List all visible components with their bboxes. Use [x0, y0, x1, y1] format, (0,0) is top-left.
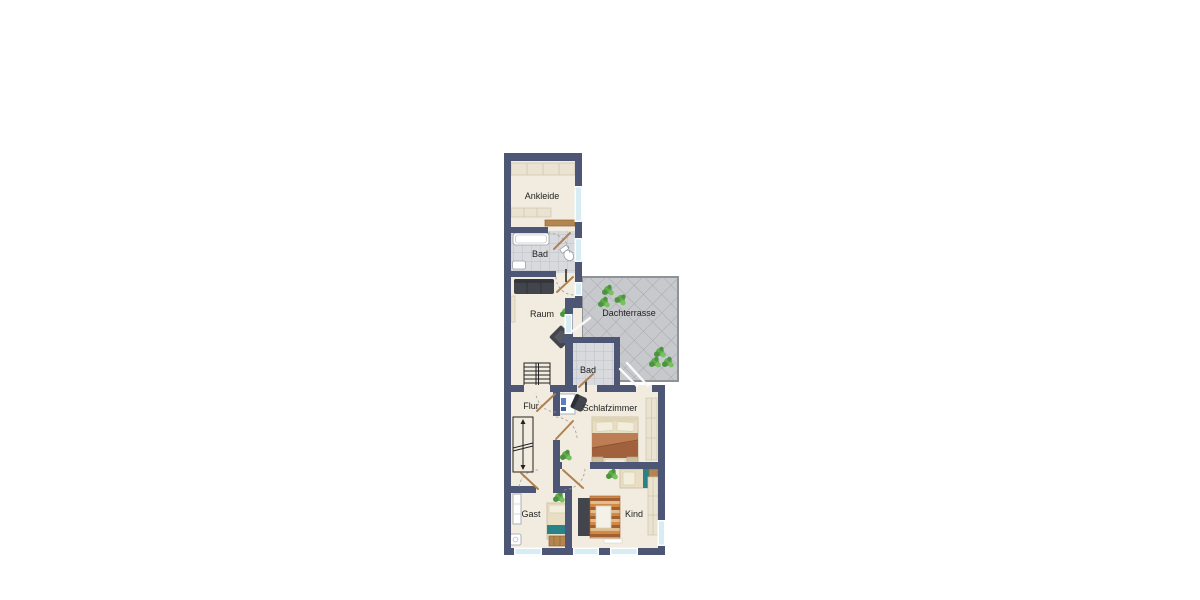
- floorplan-page: Ankleide Bad Raum Dachterrasse Bad Flur …: [0, 0, 1200, 600]
- window: [575, 282, 583, 296]
- built-in-wardrobe: [648, 477, 658, 535]
- sink: [513, 261, 526, 269]
- stairs-flur: [513, 417, 533, 472]
- single-bed-gast: [547, 503, 568, 546]
- loft-bed: [578, 496, 620, 538]
- double-bed: [592, 417, 638, 465]
- window: [610, 548, 638, 556]
- window: [575, 238, 583, 262]
- shelf: [513, 494, 521, 524]
- wardrobe: [511, 208, 551, 217]
- room-label-kind: Kind: [625, 509, 643, 519]
- sofa: [514, 279, 554, 294]
- shelf: [511, 296, 515, 322]
- room-label-bad-upper: Bad: [532, 249, 548, 259]
- bathtub: [513, 233, 549, 245]
- room-label-schlafzimmer: Schlafzimmer: [583, 403, 638, 413]
- floorplan-svg: Ankleide Bad Raum Dachterrasse Bad Flur …: [0, 0, 1200, 600]
- window: [575, 186, 583, 222]
- window: [514, 548, 542, 556]
- window: [573, 548, 599, 556]
- room-label-raum: Raum: [530, 309, 554, 319]
- room-label-gast: Gast: [521, 509, 541, 519]
- room-label-dachterrasse: Dachterrasse: [602, 308, 656, 318]
- window: [565, 314, 573, 334]
- mat: [604, 539, 622, 543]
- built-in-wardrobe: [646, 398, 657, 460]
- room-label-ankleide: Ankleide: [525, 191, 560, 201]
- sideboard: [545, 220, 575, 226]
- room-label-flur: Flur: [523, 401, 539, 411]
- room-label-bad-small: Bad: [580, 365, 596, 375]
- corner-sink: [510, 534, 521, 545]
- window: [658, 520, 666, 546]
- wardrobe: [511, 163, 575, 175]
